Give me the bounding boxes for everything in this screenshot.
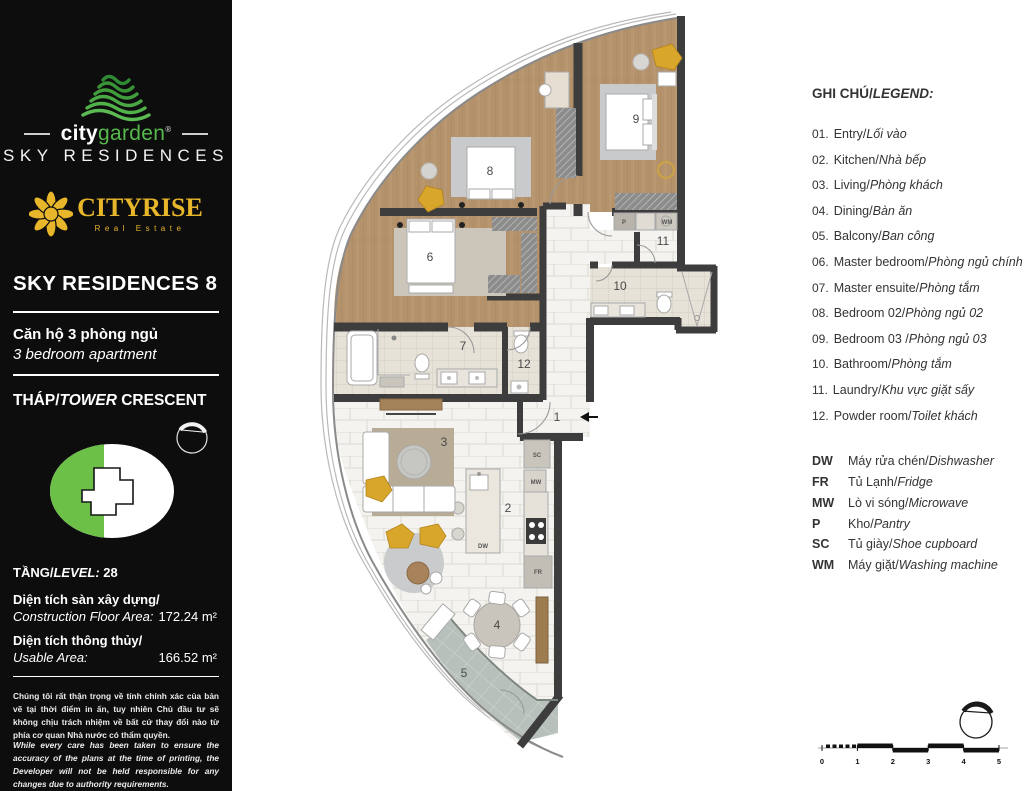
legend-abbr-row: SCTủ giày/Shoe cupboard [812,534,1024,555]
cityrise-logo: CITYRISE Real Estate [0,190,232,238]
tower-label: THÁP/TOWER CRESCENT [13,392,219,410]
svg-text:1: 1 [855,757,859,766]
legend-item: 03.Living/Phòng khách [812,173,1024,199]
legend-abbreviations: DWMáy rửa chén/Dishwasher FRTủ Lạnh/Frid… [812,451,1024,576]
wardrobe [492,217,537,231]
wardrobe [615,193,677,210]
svg-text:4: 4 [962,757,967,766]
room-label-kitchen: 2 [505,501,512,515]
room-label-ensuite: 7 [460,339,467,353]
brand-city: city [61,122,98,145]
legend-panel: GHI CHÚ/LEGEND: 01.Entry/Lối vào 02.Kitc… [812,86,1024,576]
legend-item: 05.Balcony/Ban công [812,224,1024,250]
unit-title: SKY RESIDENCES 8 [13,272,219,296]
tag-washing-machine: WM [662,220,673,226]
chaise [363,432,389,484]
level-label: TẦNG/LEVEL: 28 [13,565,219,580]
legend-item: 07.Master ensuite/Phòng tắm [812,276,1024,302]
legend-item: 10.Bathroom/Phòng tắm [812,352,1024,378]
sideboard [536,597,548,663]
legend-item: 02.Kitchen/Nhà bếp [812,148,1024,174]
divider [13,676,219,677]
room-label-bedroom2: 8 [487,164,494,178]
tv-console [380,399,442,410]
legend-item: 01.Entry/Lối vào [812,122,1024,148]
cityrise-name: CITYRISE [77,195,203,221]
legend-title: GHI CHÚ/LEGEND: [812,86,1024,101]
side-table [407,562,429,584]
cooktop [526,518,546,544]
shower-head [392,336,397,341]
area2-label-vi: Diện tích thông thủy/ [13,633,219,648]
legend-item: 04.Dining/Bàn ăn [812,199,1024,225]
legend-abbr-row: WMMáy giặt/Washing machine [812,555,1024,576]
tag-pantry: P [622,220,626,226]
toilet [514,335,528,353]
room-label-bedroom3: 9 [633,112,640,126]
room-label-living: 3 [441,435,448,449]
room-label-powder: 12 [517,357,531,371]
area1-value: 172.24 m² [158,609,217,624]
room-label-master-bedroom: 6 [427,250,434,264]
citygarden-logo: citygarden® [0,122,232,146]
legend-abbr-row: DWMáy rửa chén/Dishwasher [812,451,1024,472]
cityrise-sub: Real Estate [77,224,203,233]
wardrobe [521,233,537,293]
toilet [657,295,671,313]
cityrise-flower-icon [29,190,73,238]
nightstand [658,72,676,86]
room-label-laundry: 11 [657,234,670,248]
brand-reg: ® [165,125,171,134]
legend-abbr-row: MWLò vi sóng/Microwave [812,493,1024,514]
area1-label-vi: Diện tích sàn xây dựng/ [13,592,219,607]
floor-plan: 1 2 3 4 5 6 7 8 9 10 11 12 P WM MW FR DW… [300,0,740,791]
bed [606,94,648,150]
tag-shoe-cupboard: SC [533,453,542,459]
legend-abbr-row: FRTủ Lạnh/Fridge [812,472,1024,493]
tower-location-diagram [42,440,190,544]
brand-garden: garden [98,122,165,145]
room-label-dining: 4 [494,618,501,632]
floorplan-sheet: citygarden® SKY RESIDENCES CITYR [0,0,1024,791]
divider [13,311,219,313]
wardrobe [556,108,576,178]
legend-item: 08.Bedroom 02/Phòng ngủ 02 [812,301,1024,327]
citygarden-waves-icon [44,72,188,126]
coffee-table [397,445,431,479]
brand-sky-residences: SKY RESIDENCES [0,146,232,166]
toilet [415,354,429,372]
stool [452,528,464,540]
sidebar: citygarden® SKY RESIDENCES CITYR [0,0,232,791]
tag-microwave: MW [531,480,542,486]
tag-fridge: FR [534,570,543,576]
legend-item: 12.Powder room/Toilet khách [812,404,1024,430]
legend-item: 11.Laundry/Khu vực giặt sấy [812,378,1024,404]
svg-text:0: 0 [820,757,824,766]
unit-type-vi: Căn hộ 3 phòng ngủ [13,326,219,343]
dash-right [182,133,208,135]
legend-item: 09.Bedroom 03 /Phòng ngủ 03 [812,327,1024,353]
unit-type-en: 3 bedroom apartment [13,346,219,363]
room-label-bathroom: 10 [613,279,627,293]
svg-text:3: 3 [926,757,930,766]
dining-chair [489,645,506,658]
svg-text:2: 2 [891,757,895,766]
dining-chair [488,591,506,605]
sink [470,475,488,490]
area2-value: 166.52 m² [158,650,217,665]
legend-item: 06.Master bedroom/Phòng ngủ chính [812,250,1024,276]
divider [13,374,219,376]
dash-left [24,133,50,135]
room-label-entry: 1 [554,410,561,424]
disclaimer-en: While every care has been taken to ensur… [13,739,219,790]
room-label-balcony: 5 [461,666,468,680]
svg-text:5: 5 [997,757,1001,766]
wardrobe [488,275,520,293]
north-compass-icon [950,696,1002,748]
legend-abbr-row: PKho/Pantry [812,514,1024,535]
tag-dishwasher: DW [478,544,488,550]
bench [409,285,453,293]
disclaimer-vi: Chúng tôi rất thận trọng về tính chính x… [13,690,219,741]
